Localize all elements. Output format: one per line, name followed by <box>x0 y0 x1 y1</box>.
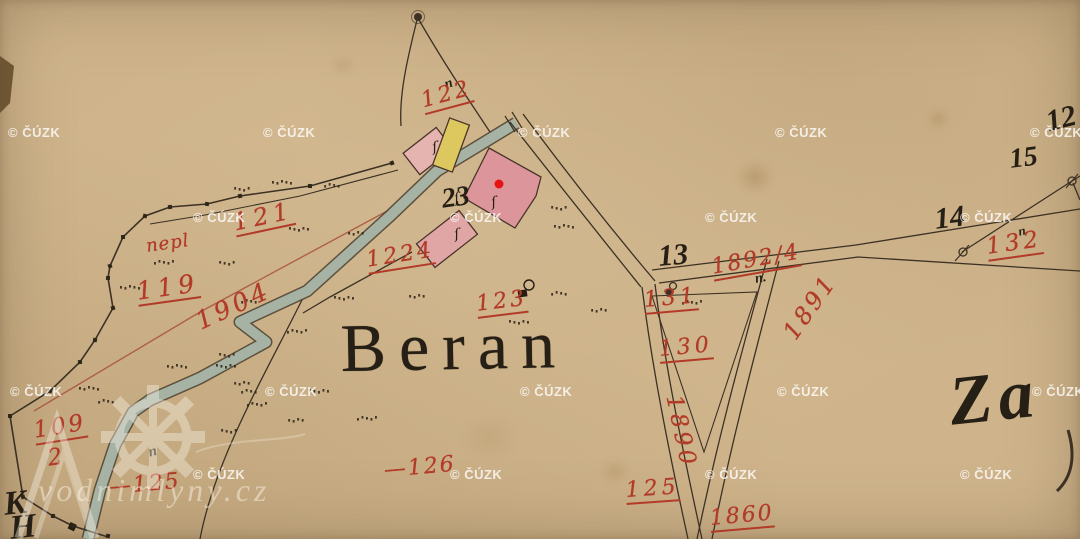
copyright-watermark: © ČÚZK <box>193 210 245 225</box>
copyright-watermark: © ČÚZK <box>265 384 317 399</box>
copyright-watermark: © ČÚZK <box>8 125 60 140</box>
copyright-watermark: © ČÚZK <box>705 467 757 482</box>
copyright-watermark: © ČÚZK <box>520 384 572 399</box>
copyright-watermark: © ČÚZK <box>518 125 570 140</box>
copyright-watermark: © ČÚZK <box>450 467 502 482</box>
map-viewport[interactable]: ſ ſ ſ ſ BeranZaKH1314151223nnn.n <box>0 0 1080 539</box>
copyright-watermark: © ČÚZK <box>193 467 245 482</box>
copyright-watermark: © ČÚZK <box>705 210 757 225</box>
copyright-watermark: © ČÚZK <box>1032 384 1080 399</box>
copyright-watermark-layer: © ČÚZK© ČÚZK© ČÚZK© ČÚZK© ČÚZK© ČÚZK© ČÚ… <box>0 0 1080 539</box>
copyright-watermark: © ČÚZK <box>775 125 827 140</box>
copyright-watermark: © ČÚZK <box>10 384 62 399</box>
copyright-watermark: © ČÚZK <box>960 210 1012 225</box>
copyright-watermark: © ČÚZK <box>1030 125 1080 140</box>
copyright-watermark: © ČÚZK <box>777 384 829 399</box>
copyright-watermark: © ČÚZK <box>450 210 502 225</box>
copyright-watermark: © ČÚZK <box>263 125 315 140</box>
copyright-watermark: © ČÚZK <box>960 467 1012 482</box>
